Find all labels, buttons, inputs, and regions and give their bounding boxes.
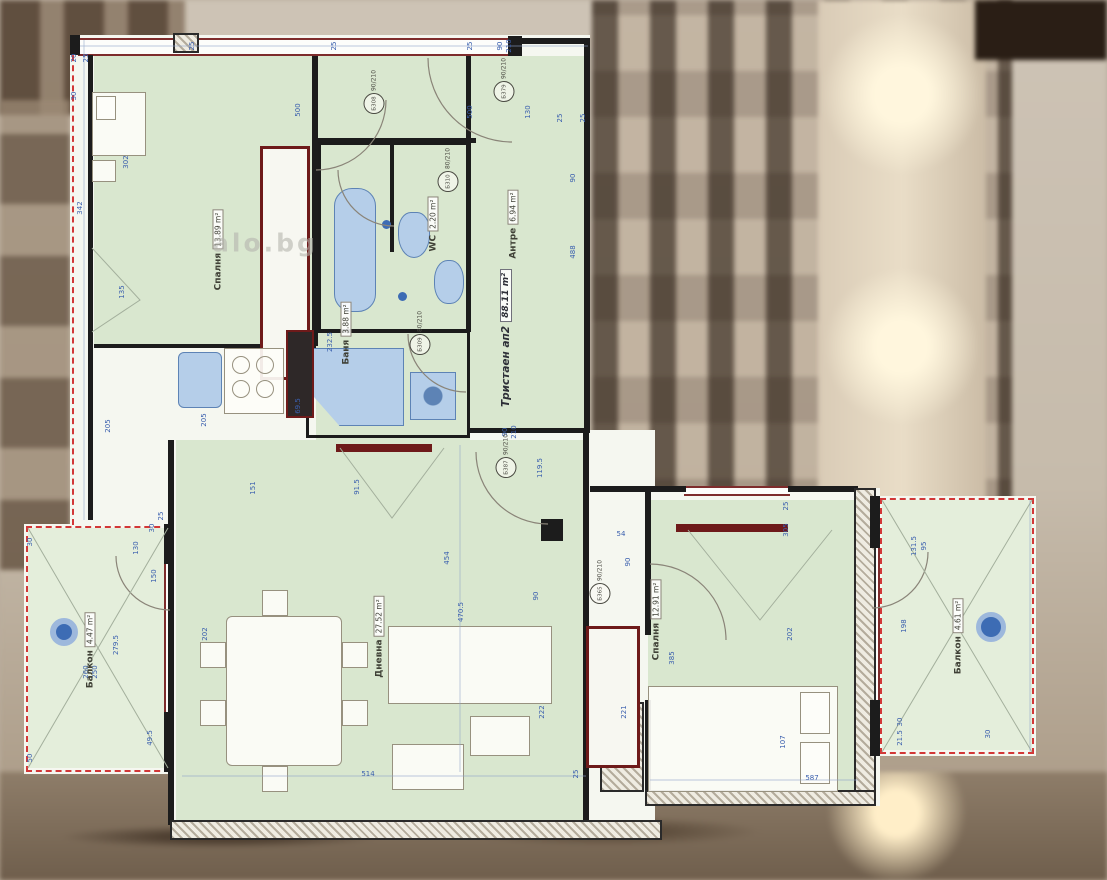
room-name: WC: [428, 235, 438, 252]
wall: [470, 428, 590, 433]
room-name: Спалня: [651, 623, 661, 661]
dimension-label: 25: [556, 114, 564, 123]
dimension-label: 198: [900, 619, 908, 632]
dimension-label: 30: [26, 538, 34, 547]
dimension-label: 221: [620, 705, 628, 718]
dimension-label: 25: [782, 502, 790, 511]
dimension-label: 30: [148, 524, 156, 533]
cooktop-burner: [256, 356, 274, 374]
dimension-label: 470.5: [457, 602, 465, 622]
dimension-label: 25: [466, 42, 474, 51]
dimension-label: 151: [249, 481, 257, 494]
dimension-label: 232.5: [326, 332, 334, 352]
wall: [70, 35, 80, 55]
sink-dot: [382, 220, 391, 229]
room-area: 27.52 m²: [374, 596, 385, 636]
room-name: Баня: [341, 340, 351, 365]
bg-column-left: [0, 100, 70, 570]
wall-entry-left: [466, 56, 471, 332]
column: [541, 519, 563, 541]
room-label: WC2.20 m²: [428, 197, 439, 252]
apartment-label: Тристаен ап2 88.11 m²: [500, 269, 512, 407]
dimension-label: 69.5: [294, 398, 302, 414]
door-tag: Б37990/210: [494, 58, 515, 102]
wall: [516, 38, 590, 44]
dimension-label: 91.5: [353, 479, 361, 495]
door-tag-size: 90/210: [371, 70, 378, 91]
sofa: [388, 626, 552, 704]
cooktop-burner: [232, 380, 250, 398]
dimension-label: 131.5: [910, 536, 918, 556]
dimension-label: 49.5: [146, 730, 154, 746]
dimension-label: 95: [920, 542, 928, 551]
door-tag-code: Б309: [410, 334, 431, 355]
wall-balcony-right-pier-top: [870, 496, 880, 548]
room-area: 3.88 m²: [341, 301, 352, 336]
wardrobe-bedroom2: [586, 626, 640, 768]
dimension-label: 500: [294, 103, 302, 116]
door-tag: Б31080/210: [438, 148, 459, 192]
pillow: [96, 96, 116, 120]
door-tag-size: 90/210: [501, 58, 508, 79]
dimension-label: 202: [786, 627, 794, 640]
dimension-label: 90: [532, 592, 540, 601]
wall-balcony-left-pier-top: [164, 524, 174, 564]
nightstand: [92, 160, 116, 182]
dimension-label: 135: [118, 285, 126, 298]
sink-dot: [398, 292, 407, 301]
dimension-label: 25: [330, 42, 338, 51]
room-label: Балкон4.47 m²: [85, 612, 96, 688]
room-name: Балкон: [953, 636, 963, 674]
wall-balcony-right-pier-bottom: [870, 700, 880, 756]
room-label: Антре6.94 m²: [508, 189, 519, 258]
room-name: Антре: [508, 228, 518, 259]
toilet: [398, 212, 430, 258]
dimension-label: 514: [361, 770, 374, 778]
door-tag-size: 90/210: [597, 560, 604, 581]
dimension-label: 210: [505, 39, 513, 52]
wall-bedroom2-top-right: [788, 486, 858, 492]
dimension-label: 202: [201, 627, 209, 640]
wall-bottom-living-hatched: [170, 820, 662, 840]
dimension-label: 54: [617, 530, 626, 538]
chair: [342, 700, 368, 726]
door-tag-code: Б387: [496, 457, 517, 478]
dimension-label: 25: [188, 42, 196, 51]
door-tag: Б30890/210: [364, 70, 385, 114]
pillow: [800, 692, 830, 734]
dimension-label: 130: [524, 105, 532, 118]
radiator-living: [336, 444, 432, 452]
cooktop-burner: [232, 356, 250, 374]
dimension-label: 25: [572, 770, 580, 779]
dimension-label: 50: [26, 754, 34, 763]
door-tag-code: Б310: [438, 171, 459, 192]
dimension-label: 150: [150, 569, 158, 582]
dimension-label: 21.5: [896, 730, 904, 746]
room-label: Спалня12.91 m²: [651, 580, 662, 661]
dimension-label: 30: [984, 730, 992, 739]
dimension-label: 302: [122, 155, 130, 168]
dining-table: [226, 616, 342, 766]
apartment-name: Тристаен ап2: [500, 326, 512, 407]
door-tag: Б36590/210: [590, 560, 611, 604]
dimension-label: 205: [104, 419, 112, 432]
tv-cabinet: [392, 744, 464, 790]
coffee-table: [470, 716, 530, 756]
dimension-label: 454: [443, 551, 451, 564]
door-tag: Б30980/210: [410, 311, 431, 355]
apartment-area: 88.11 m²: [500, 269, 512, 322]
window-band-bedroom2: [684, 486, 790, 496]
bg-light-band: [818, 0, 986, 525]
chair: [262, 590, 288, 616]
dimension-label: 222: [538, 705, 546, 718]
dimension-label: 305: [782, 523, 790, 536]
screenshot-root: 2525259021025255005001302025303023421352…: [0, 0, 1107, 880]
room-name: Спалня: [213, 253, 223, 291]
door-tag-size: 90/210: [503, 434, 510, 455]
watermark: alo.bg: [212, 229, 318, 258]
dimension-label: 385: [668, 651, 676, 664]
room-area: 2.20 m²: [428, 197, 439, 232]
door-tag-code: Б365: [590, 583, 611, 604]
radiator-bedroom2: [676, 524, 788, 532]
dimension-label: 130: [132, 541, 140, 554]
window-band-top: [78, 38, 516, 56]
kitchen-counter: [224, 348, 284, 414]
cooktop-burner: [256, 380, 274, 398]
room-area: 4.47 m²: [85, 612, 96, 647]
dimension-label: 90: [569, 174, 577, 183]
room-area: 6.94 m²: [508, 189, 519, 224]
door-tag: Б38790/210: [496, 434, 517, 478]
wall-balcony-left-pier-bottom: [164, 712, 174, 772]
room-label: Баня3.88 m²: [341, 301, 352, 364]
dimension-label: 205: [200, 413, 208, 426]
dimension-label: 90: [496, 42, 504, 51]
dimension-label: 90: [624, 558, 632, 567]
wall-bottom-right-hatched: [645, 790, 876, 806]
dimension-label: 488: [569, 245, 577, 258]
room-area: 4.61 m²: [953, 598, 964, 633]
dimension-label: 30: [896, 718, 904, 727]
floor-drain-right: [976, 612, 1006, 642]
dimension-label: 342: [76, 201, 84, 214]
room-area: 12.91 m²: [651, 580, 662, 620]
dimension-label: 30: [70, 92, 78, 101]
dimension-label: 20: [70, 54, 78, 63]
wall-right-upper: [584, 38, 590, 430]
washing-machine: [410, 372, 456, 420]
room-name: Балкон: [85, 650, 95, 688]
chair: [342, 642, 368, 668]
chair: [200, 700, 226, 726]
dimension-label: 587: [805, 774, 818, 782]
chair: [262, 766, 288, 792]
door-tag-size: 80/210: [445, 148, 452, 169]
dimension-label: 25: [82, 54, 90, 63]
wall: [390, 142, 394, 252]
room-name: Дневна: [374, 639, 384, 677]
bg-dark-topright: [975, 0, 1107, 60]
room-label: Балкон4.61 m²: [953, 598, 964, 674]
chair: [200, 642, 226, 668]
dimension-label: 500: [466, 105, 474, 118]
wall-bedroom2-top-left: [590, 486, 686, 492]
dimension-label: 279.5: [112, 635, 120, 655]
dimension-label: 107: [779, 735, 787, 748]
door-tag-code: Б379: [494, 81, 515, 102]
dimension-label: 25: [579, 114, 587, 123]
bidet: [434, 260, 464, 304]
door-tag-code: Б308: [364, 93, 385, 114]
room-label: Дневна27.52 m²: [374, 596, 385, 678]
kitchen-sink: [178, 352, 222, 408]
red-dashed-line-left: [72, 35, 74, 525]
door-tag-size: 80/210: [417, 311, 424, 332]
floor-drain-left: [50, 618, 78, 646]
dimension-label: 119.5: [536, 458, 544, 478]
dimension-label: 25: [157, 512, 165, 521]
bathtub-wc: [334, 188, 376, 312]
